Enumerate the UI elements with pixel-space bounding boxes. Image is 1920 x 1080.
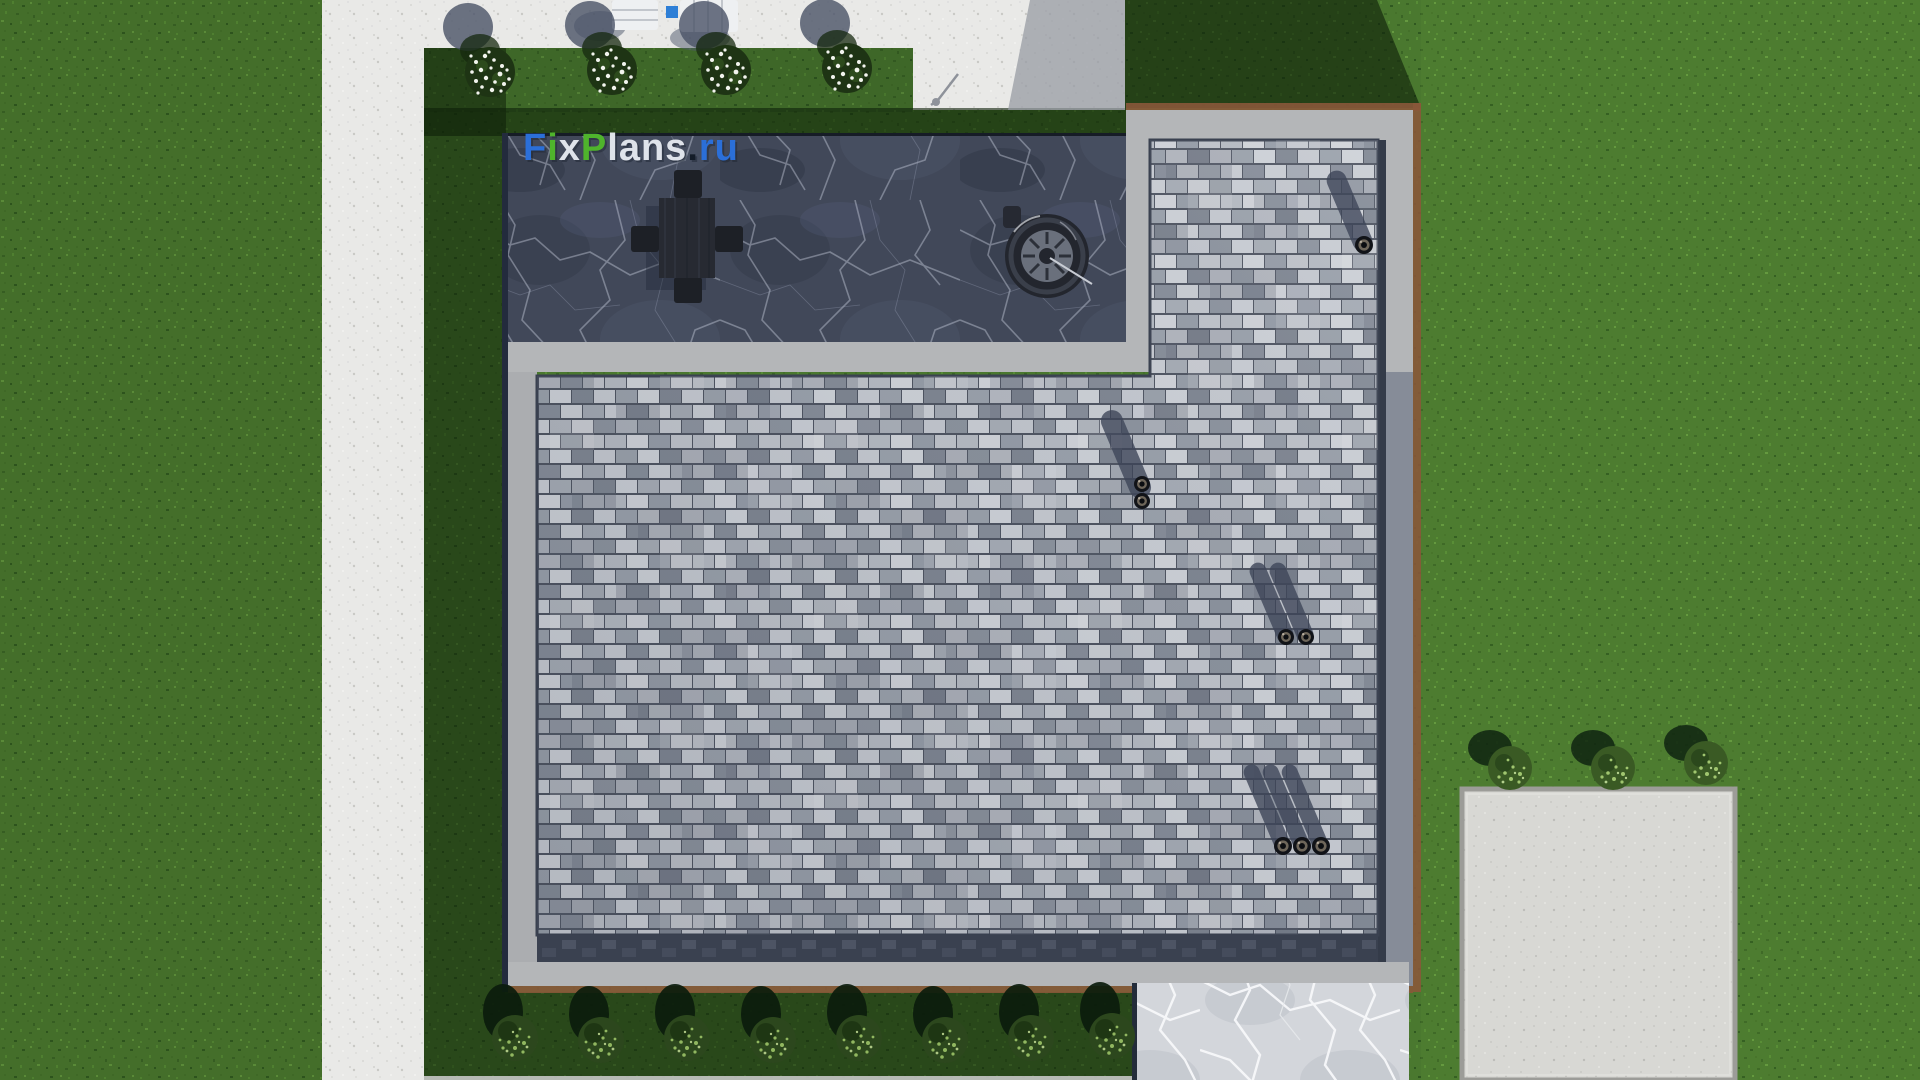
- watermark-text: FixPlans.ru: [523, 127, 739, 169]
- copper-edge-right: [1413, 103, 1421, 992]
- concrete-path-vertical: [322, 0, 424, 1080]
- bottom-concrete-sliver: [424, 1076, 1132, 1080]
- grill-seat: [1003, 206, 1021, 228]
- concrete-driveway: [1462, 789, 1735, 1080]
- chair: [674, 277, 702, 303]
- chair: [631, 226, 659, 252]
- house-edge-left: [502, 133, 508, 992]
- pool-blue-marker: [666, 6, 678, 18]
- grass-tone-left: [0, 0, 322, 1080]
- gutter-bottom: [537, 935, 1378, 962]
- border-band-right-lower: [1386, 372, 1413, 986]
- border-band-right-upper: [1386, 140, 1413, 372]
- border-band-left: [508, 372, 537, 986]
- border-band-top-right: [1150, 110, 1413, 140]
- house-roof: FixPlans.ruFixPlans.ru: [502, 103, 1421, 993]
- border-band-terrace-bottom: [508, 342, 1126, 372]
- aerial-render-canvas: Top-down 3D render of a house roof and l…: [0, 0, 1920, 1080]
- antenna-shadow-dot: [932, 98, 940, 106]
- copper-edge-top: [1126, 103, 1421, 111]
- lounger: [612, 0, 658, 30]
- border-band-divider: [1126, 110, 1150, 372]
- chair: [674, 170, 702, 198]
- marble-walkway: [1137, 983, 1409, 1080]
- border-band-bottom: [508, 962, 1409, 986]
- watermark: FixPlans.ruFixPlans.ru: [523, 127, 741, 171]
- chair: [715, 226, 743, 252]
- site-plan-render: Top-down 3D render of a house roof and l…: [0, 0, 1920, 1080]
